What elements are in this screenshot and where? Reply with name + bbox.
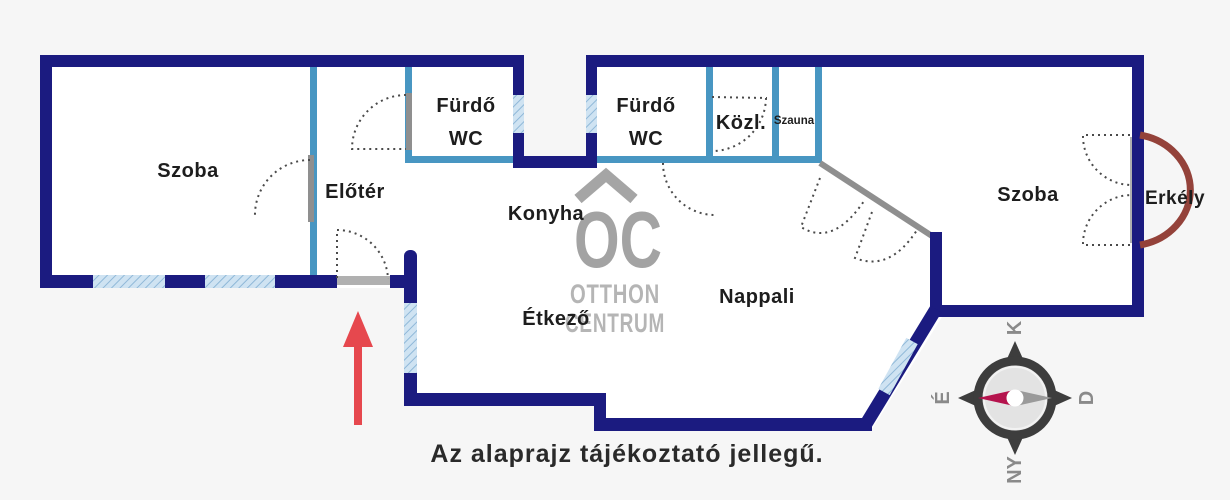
wall-bottom-left-b xyxy=(165,275,205,288)
floor-plan-drawing: OC OTTHON CENTRUM Szoba Előtér Fürdő WC … xyxy=(0,0,1230,500)
wall-bottom-upper xyxy=(404,393,606,406)
window xyxy=(404,303,417,373)
window xyxy=(93,275,165,288)
label-etkezo: Étkező xyxy=(522,307,589,330)
wall-shaft-bottom xyxy=(513,156,597,168)
wall-nappali-right xyxy=(930,232,942,317)
wall-bottom-lower xyxy=(600,418,872,431)
label-furdo2-line2: WC xyxy=(629,128,663,150)
window xyxy=(205,275,275,288)
label-konyha: Konyha xyxy=(508,203,585,225)
wall-right xyxy=(1132,55,1144,317)
label-furdo1-line2: WC xyxy=(449,128,483,150)
entrance-threshold xyxy=(337,276,390,285)
wall-top-right xyxy=(586,55,1144,67)
compass-rose: K D NY É xyxy=(931,320,1098,484)
label-kozl: Közl. xyxy=(716,112,766,134)
compass-label-right: D xyxy=(1076,391,1098,405)
label-eloter: Előtér xyxy=(325,181,385,203)
wall-szauna-right xyxy=(815,67,822,162)
floor-plan-page: OC OTTHON CENTRUM Szoba Előtér Fürdő WC … xyxy=(0,0,1230,500)
door-leaf-szoba xyxy=(308,155,314,222)
label-furdo1-line1: Fürdő xyxy=(436,95,495,117)
wall-szoba-right-bottom xyxy=(930,305,1144,317)
label-furdo2-line1: Fürdő xyxy=(616,95,675,117)
door-leaf-bath1 xyxy=(406,93,412,150)
wall-top-left xyxy=(40,55,524,67)
compass-hub xyxy=(1007,390,1024,407)
wall-bottom-left-c xyxy=(275,275,337,288)
wall-left xyxy=(40,55,52,288)
label-szoba-left: Szoba xyxy=(157,160,219,182)
label-erkely: Erkély xyxy=(1145,188,1205,209)
wall-bath2-kozl xyxy=(706,67,713,162)
wall-bath-bottom xyxy=(405,156,822,163)
label-szauna: Szauna xyxy=(774,115,815,127)
watermark-line1: OTTHON xyxy=(570,279,660,309)
disclaimer-text: Az alaprajz tájékoztató jellegű. xyxy=(430,440,823,468)
entrance-arrow xyxy=(343,311,373,425)
compass-label-top: K xyxy=(1004,320,1026,335)
window xyxy=(586,95,597,133)
window xyxy=(513,95,524,133)
wall-bottom-left-d xyxy=(390,275,404,288)
compass-label-bottom: NY xyxy=(1004,455,1026,483)
label-nappali: Nappali xyxy=(719,286,795,308)
watermark-initials: OC xyxy=(574,195,662,284)
label-szoba-right: Szoba xyxy=(997,184,1059,206)
compass-label-left: É xyxy=(931,391,954,404)
